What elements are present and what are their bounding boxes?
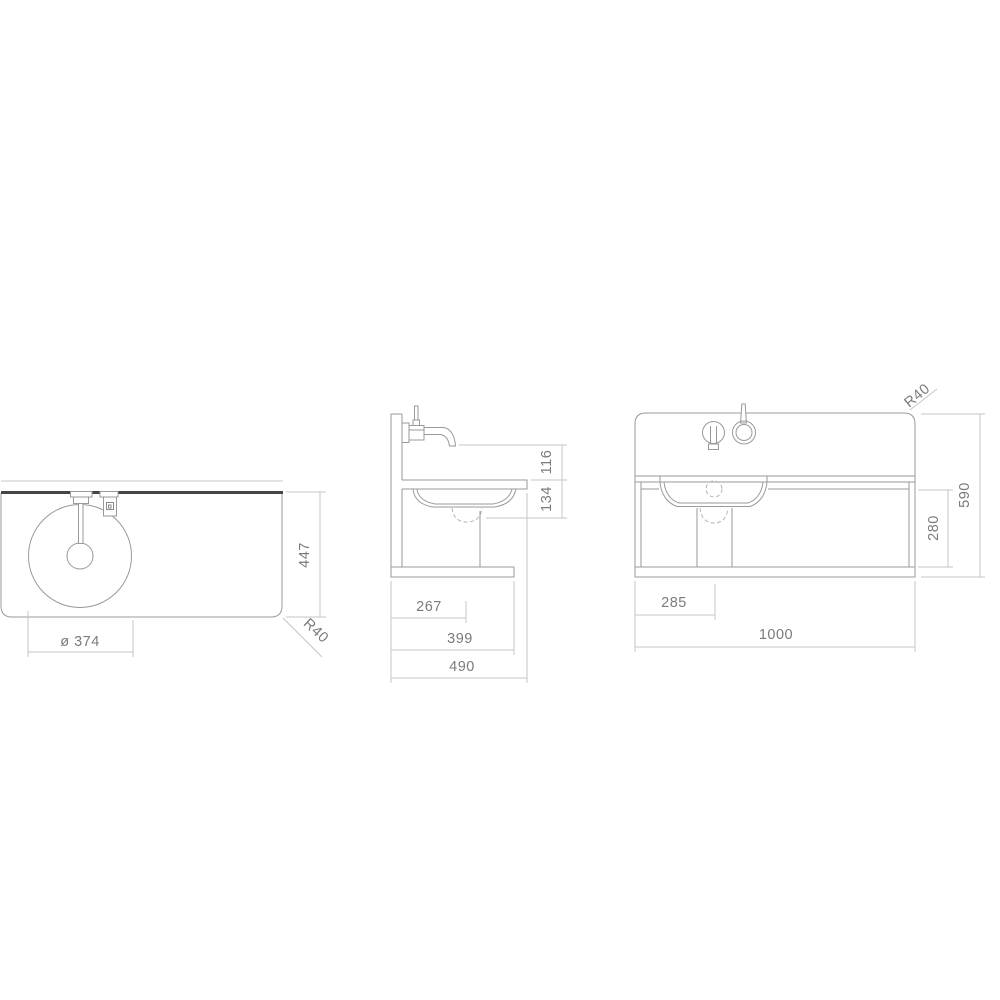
front-dim-corner-radius: R40: [902, 381, 937, 411]
side-trap-hidden: [452, 508, 482, 522]
dim-label-total-height: 590: [957, 482, 973, 508]
technical-drawing-page: 447 R40 ø 374: [0, 0, 1000, 1000]
plan-dim-basin-diameter: ø 374: [28, 611, 133, 657]
dim-label-front-radius: R40: [902, 381, 934, 411]
dim-label-total-depth: 490: [449, 659, 475, 675]
plan-dim-counter-depth: 447: [286, 492, 326, 617]
front-unit-outline: [635, 413, 915, 577]
plan-counter-outline: [1, 493, 282, 617]
side-dim-total-depth: 490: [391, 493, 527, 683]
faucet-spout-curve: [424, 428, 456, 447]
faucet-handle-stem: [415, 406, 419, 420]
side-counter-band: [402, 480, 527, 489]
front-basin-inner: [664, 482, 763, 503]
plan-view: 447 R40 ø 374: [1, 481, 331, 657]
spout-collar: [74, 497, 89, 504]
side-bottom-shelf: [391, 567, 514, 577]
front-spout-nozzle: [709, 444, 719, 450]
dim-label-drain-offset: 267: [416, 599, 442, 615]
front-spout-escutcheon: [703, 422, 725, 444]
dim-label-counter-depth: 447: [297, 542, 313, 568]
dim-label-spout-height: 116: [539, 450, 555, 475]
dim-label-under-counter-height: 280: [926, 515, 942, 541]
plan-faucet-handle: [100, 492, 118, 517]
front-dim-under-counter-height: 280: [918, 490, 953, 567]
dim-label-basin-diameter: ø 374: [60, 634, 100, 650]
front-handle-stem: [741, 404, 747, 423]
spout-tube: [79, 504, 84, 544]
dim-label-plan-radius: R40: [300, 616, 331, 647]
faucet-body: [409, 426, 424, 441]
spout-mount-plate: [71, 492, 93, 498]
washbasin-drawing: 447 R40 ø 374: [0, 0, 1000, 1000]
front-faucet: [703, 404, 756, 450]
plan-dim-corner-radius: R40: [283, 616, 331, 657]
front-view: R40 590 280 285 1000: [635, 381, 985, 652]
handle-mount-plate: [100, 492, 118, 498]
plan-drain-circle: [67, 543, 93, 569]
front-dim-total-width: 1000: [635, 581, 915, 652]
front-dim-basin-center-offset: 285: [635, 584, 715, 620]
dim-label-basin-depth: 134: [539, 486, 555, 512]
side-wall-panel: [391, 414, 402, 567]
dim-label-shelf-depth: 399: [447, 631, 473, 647]
side-view: 116 134 267 399 490: [391, 406, 567, 683]
plan-faucet-spout: [71, 492, 93, 544]
faucet-wall-plate: [402, 423, 409, 443]
dim-label-basin-center-offset: 285: [661, 595, 687, 611]
side-dim-drain-offset: 267: [391, 599, 466, 623]
front-drain-hidden: [706, 481, 722, 497]
side-dim-spout-height: 116: [459, 445, 567, 480]
handle-body: [104, 497, 117, 516]
side-basin-inner: [417, 489, 512, 504]
dim-label-total-width: 1000: [759, 627, 793, 643]
front-dim-total-height: 590: [921, 414, 985, 577]
front-handle-inner: [736, 425, 752, 441]
side-faucet: [402, 406, 456, 446]
front-trap-hidden: [700, 508, 728, 523]
